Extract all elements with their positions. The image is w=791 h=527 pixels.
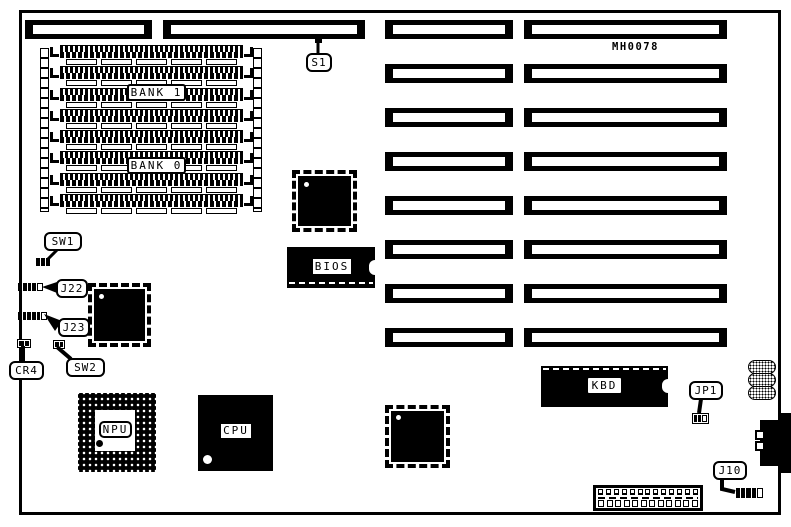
simm-chip-outline [101, 208, 132, 214]
bios-chip: BIOS [287, 247, 375, 288]
din-connector-pin-tab [755, 430, 765, 440]
part-number-text: MH0078 [612, 41, 659, 53]
expansion-slot-row3-right [524, 108, 727, 127]
simm-clip-left [50, 196, 59, 206]
simm-chip-outline [206, 187, 237, 193]
cr4-component [17, 339, 31, 348]
simm-chip-outline [206, 123, 237, 129]
simm-chip-outline [66, 59, 97, 65]
power-contact-square [615, 500, 621, 507]
cr4-label: CR4 [9, 361, 44, 380]
simm-edge-strip-right [253, 48, 262, 212]
bank0-label: BANK 0 [127, 157, 186, 174]
simm-clip-right [244, 132, 253, 142]
simm-chip-outline [136, 187, 167, 193]
simm-clip-left [50, 153, 59, 163]
simm-chip-outline [136, 123, 167, 129]
simm-chip-outline [171, 208, 202, 214]
sw1-switch [36, 258, 50, 266]
simm-module-pins [60, 45, 243, 58]
simm-chip-outline [66, 102, 97, 108]
simm-clip-right [244, 68, 253, 78]
jp1-jumper [692, 413, 709, 424]
pin1-dot [396, 415, 401, 420]
simm-module-pins [60, 109, 243, 122]
npu-socket: NPU [78, 393, 156, 472]
power-contact-clip [677, 489, 682, 495]
simm-clip-right [244, 47, 253, 57]
simm-rows [50, 45, 253, 215]
cpu-pin1-dot [203, 455, 212, 464]
simm-chip-outline [136, 208, 167, 214]
kbd-chip-label: KBD [587, 377, 622, 394]
simm-chip-outline [66, 208, 97, 214]
simm-chip-outline [206, 80, 237, 86]
simm-clip-left [50, 47, 59, 57]
expansion-slot-row6-left [385, 240, 513, 259]
simm-clip-left [50, 90, 59, 100]
din-connector-pin-tab [755, 441, 765, 451]
power-contact-square [666, 500, 672, 507]
simm-chip-outline [171, 123, 202, 129]
simm-chip-outline [206, 208, 237, 214]
top-slot-bar-right [163, 20, 365, 39]
kbd-dashed-edge [543, 368, 666, 370]
power-contact-clip [685, 489, 690, 495]
dotted-pattern-component [748, 361, 776, 401]
sw2-label: SW2 [66, 358, 105, 377]
simm-chip-outline [101, 59, 132, 65]
simm-edge-strip-left [40, 48, 49, 212]
j22-label: J22 [56, 279, 88, 298]
top-slot-bar-left [25, 20, 152, 39]
simm-clip-left [50, 111, 59, 121]
sw1-label: SW1 [44, 232, 82, 251]
simm-row [50, 173, 253, 194]
power-connector [593, 485, 703, 511]
power-contact-clip [638, 489, 643, 495]
simm-chip-outline [66, 80, 97, 86]
j10-label: J10 [713, 461, 747, 480]
sw2-switch [53, 340, 65, 349]
cpu-chip-label: CPU [220, 423, 252, 439]
simm-clip-right [244, 175, 253, 185]
power-contact-clip [645, 489, 650, 495]
bios-chip-label: BIOS [312, 258, 352, 275]
simm-chip-outline [171, 102, 202, 108]
power-contact-clip [693, 489, 698, 495]
simm-chip-outline [101, 187, 132, 193]
j23-label: J23 [58, 318, 90, 337]
npu-pin1-dot [96, 440, 103, 447]
simm-chip-outline [66, 187, 97, 193]
simm-clip-left [50, 68, 59, 78]
power-contact-square [649, 500, 655, 507]
simm-chip-outline [171, 187, 202, 193]
pin1-dot [304, 182, 309, 187]
simm-module-pins [60, 130, 243, 143]
expansion-slot-row2-left [385, 64, 513, 83]
npu-label: NPU [99, 421, 132, 438]
expansion-slot-row4-right [524, 152, 727, 171]
power-contact-square [675, 500, 681, 507]
j23-connector [18, 312, 47, 320]
dotted-segment [748, 373, 776, 387]
power-contact-square [598, 500, 604, 507]
simm-module-pins [60, 173, 243, 186]
chipset-qfp-chip-bottom [385, 405, 450, 468]
simm-chip-outline [206, 102, 237, 108]
simm-clip-left [50, 132, 59, 142]
cpu-chip: CPU [198, 395, 273, 471]
power-contact-clip [614, 489, 619, 495]
simm-clip-right [244, 90, 253, 100]
expansion-slot-row2-right [524, 64, 727, 83]
power-contact-clip [669, 489, 674, 495]
power-contact-square [641, 500, 647, 507]
power-contact-clip [653, 489, 658, 495]
j22-connector [18, 283, 43, 291]
simm-chip-outline [171, 59, 202, 65]
simm-chip-outline [136, 102, 167, 108]
simm-chip-outline [136, 59, 167, 65]
power-contact-square [632, 500, 638, 507]
bank1-label: BANK 1 [127, 84, 186, 101]
simm-chip-outline [136, 144, 167, 150]
power-top-contacts [596, 488, 700, 496]
simm-row [50, 130, 253, 151]
expansion-slot-row4-left [385, 152, 513, 171]
expansion-slot-row5-right [524, 196, 727, 215]
power-contact-square [658, 500, 664, 507]
keyboard-controller-chip: KBD [541, 366, 668, 407]
power-contact-square [607, 500, 613, 507]
simm-chip-outline [171, 144, 202, 150]
jp1-label: JP1 [689, 381, 723, 400]
simm-chip-outline [206, 144, 237, 150]
simm-chip-outline [66, 165, 97, 171]
simm-clip-right [244, 196, 253, 206]
power-contact-square [692, 500, 698, 507]
simm-module-pins [60, 66, 243, 79]
chipset-qfp-chip-top [292, 170, 357, 232]
expansion-slot-row7-left [385, 284, 513, 303]
memory-bank-array [40, 45, 263, 215]
bios-dashed-edge [289, 282, 373, 284]
simm-module-pins [60, 194, 243, 207]
simm-clip-right [244, 153, 253, 163]
simm-row [50, 194, 253, 215]
power-contact-square [624, 500, 630, 507]
power-contact-clip [606, 489, 611, 495]
bios-right-notch [369, 260, 375, 275]
expansion-slot-row1-right [524, 20, 727, 39]
dotted-segment [748, 360, 776, 374]
expansion-slot-row3-left [385, 108, 513, 127]
motherboard-diagram: BIOS KBD NPU CPU [0, 0, 791, 527]
power-contact-clip [598, 489, 603, 495]
simm-row [50, 109, 253, 130]
expansion-slot-row8-left [385, 328, 513, 347]
simm-chip-outline [66, 144, 97, 150]
simm-chip-outline [101, 144, 132, 150]
dotted-segment [748, 386, 776, 400]
simm-chip-outline [66, 123, 97, 129]
simm-clip-right [244, 111, 253, 121]
power-contact-clip [622, 489, 627, 495]
chipset-qfp-chip-left [88, 283, 151, 347]
pin1-dot [99, 294, 104, 299]
power-contact-clip [661, 489, 666, 495]
j10-connector [736, 488, 763, 498]
simm-chip-outline [206, 165, 237, 171]
power-bottom-contacts [596, 499, 700, 508]
expansion-slot-row1-left [385, 20, 513, 39]
simm-clip-left [50, 175, 59, 185]
expansion-slot-row6-right [524, 240, 727, 259]
kbd-right-notch [662, 379, 668, 393]
expansion-slot-row7-right [524, 284, 727, 303]
simm-row [50, 45, 253, 66]
power-contact-square [683, 500, 689, 507]
expansion-slot-row5-left [385, 196, 513, 215]
simm-chip-outline [206, 59, 237, 65]
simm-chip-outline [101, 123, 132, 129]
s1-label: S1 [306, 53, 332, 72]
power-contact-clip [630, 489, 635, 495]
simm-chip-outline [101, 102, 132, 108]
expansion-slot-row8-right [524, 328, 727, 347]
